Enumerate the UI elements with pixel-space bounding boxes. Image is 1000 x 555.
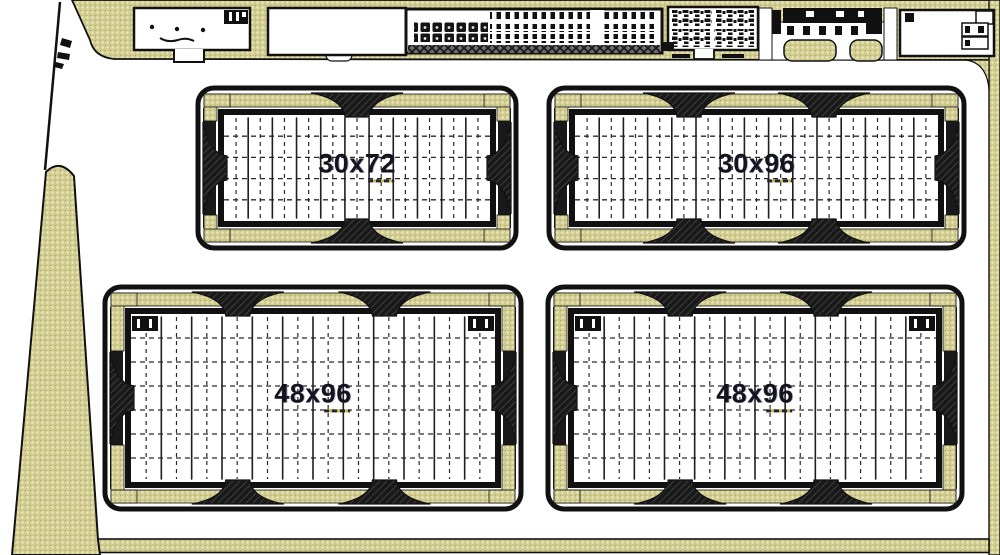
office-entrance: [174, 49, 204, 62]
stall-row: [490, 24, 658, 32]
fixture-slit: [229, 12, 232, 21]
frame-bar: [568, 308, 942, 314]
landscape-corner: [204, 94, 230, 107]
grid-corner-box: [468, 316, 494, 331]
bottom-landscape-strip: [96, 539, 989, 553]
landscape-corner: [111, 490, 137, 503]
right-landscape-strip: [989, 0, 1000, 555]
grid-corner-box: [909, 316, 935, 331]
canopy-slit: [836, 11, 844, 17]
landscape-strip: [125, 490, 501, 503]
walkway-hatch: [408, 45, 660, 53]
greenhouse-48x96-2: [105, 287, 521, 509]
corner-box-tick: [137, 319, 140, 328]
frame-bar: [569, 221, 944, 227]
grid-corner-box: [132, 316, 158, 331]
landscape-patch: [850, 40, 882, 61]
corner-box-tick: [914, 319, 917, 328]
corner-box-tick: [592, 319, 595, 328]
fixture-mark: [978, 26, 984, 33]
corner-box-tick: [149, 319, 152, 328]
service-rooms: [716, 10, 754, 26]
landscape-strip: [569, 229, 944, 242]
greenhouse-48x96-3: [548, 287, 962, 509]
greenhouse-30x96-1: [549, 88, 964, 248]
canopy-post: [851, 26, 858, 35]
canopy-post: [819, 26, 826, 35]
landscape-strip: [568, 490, 942, 503]
service-rooms: [672, 10, 712, 26]
corner-box-tick: [926, 319, 929, 328]
service-stub: [722, 54, 744, 58]
fixture-slit: [236, 12, 239, 21]
landscape-corner: [930, 293, 956, 306]
frame-bar: [125, 308, 501, 314]
corner-box-tick: [580, 319, 583, 328]
landscape-corner: [484, 94, 510, 107]
canopy-post: [803, 26, 810, 35]
stall-row: [490, 12, 658, 21]
canopy-roof: [783, 8, 871, 23]
furniture-mark: [175, 27, 179, 31]
landscape-corner: [489, 293, 515, 306]
landscape-corner: [484, 229, 510, 242]
canopy-endcap: [866, 8, 882, 34]
service-stub: [672, 54, 690, 58]
frame-bar: [568, 482, 942, 488]
driveway-gap: [884, 8, 897, 60]
furniture-mark: [201, 28, 205, 32]
fixture-slit: [242, 12, 246, 17]
fixture-mark: [965, 26, 970, 33]
landscape-corner: [204, 229, 230, 242]
grid-corner-box: [575, 316, 601, 331]
site-plan-drawing: [0, 0, 1000, 555]
canopy-bracket: [772, 10, 781, 34]
service-step: [662, 42, 674, 51]
corner-box-tick: [485, 319, 488, 328]
frame-bar: [569, 109, 944, 115]
landscape-corner: [555, 229, 581, 242]
landscape-corner: [555, 94, 581, 107]
landscape-strip: [125, 293, 501, 306]
canopy-slit: [858, 11, 864, 17]
landscape-corner: [554, 293, 580, 306]
landscape-corner: [932, 229, 958, 242]
landscape-corner: [932, 94, 958, 107]
site-plan-canvas: 30x72 30x96 48x96 48x96: [0, 0, 1000, 555]
retail-building: [268, 8, 406, 55]
service-rooms: [672, 29, 710, 47]
landscape-strip: [569, 94, 944, 107]
landscape-corner: [930, 490, 956, 503]
canopy-post: [787, 26, 794, 35]
landscape-patch: [784, 40, 836, 61]
landscape-corner: [489, 490, 515, 503]
furniture-mark: [150, 25, 154, 29]
frame-bar: [125, 482, 501, 488]
fixture-mark: [965, 40, 970, 46]
warehouse-room: [976, 11, 993, 24]
driveway-gap: [759, 8, 772, 60]
stall-block-left: [414, 22, 488, 42]
stall-aisle: [590, 10, 604, 44]
corner-box-tick: [473, 319, 476, 328]
landscape-strip: [568, 293, 942, 306]
canopy-slit: [806, 11, 814, 17]
stall-row: [490, 34, 658, 43]
greenhouse-30x72-0: [198, 88, 516, 248]
landscape-corner: [111, 293, 137, 306]
canopy-post: [835, 26, 842, 35]
door-marker: [905, 13, 914, 22]
service-rooms: [714, 29, 754, 47]
landscape-corner: [554, 490, 580, 503]
service-entrance: [694, 49, 714, 59]
